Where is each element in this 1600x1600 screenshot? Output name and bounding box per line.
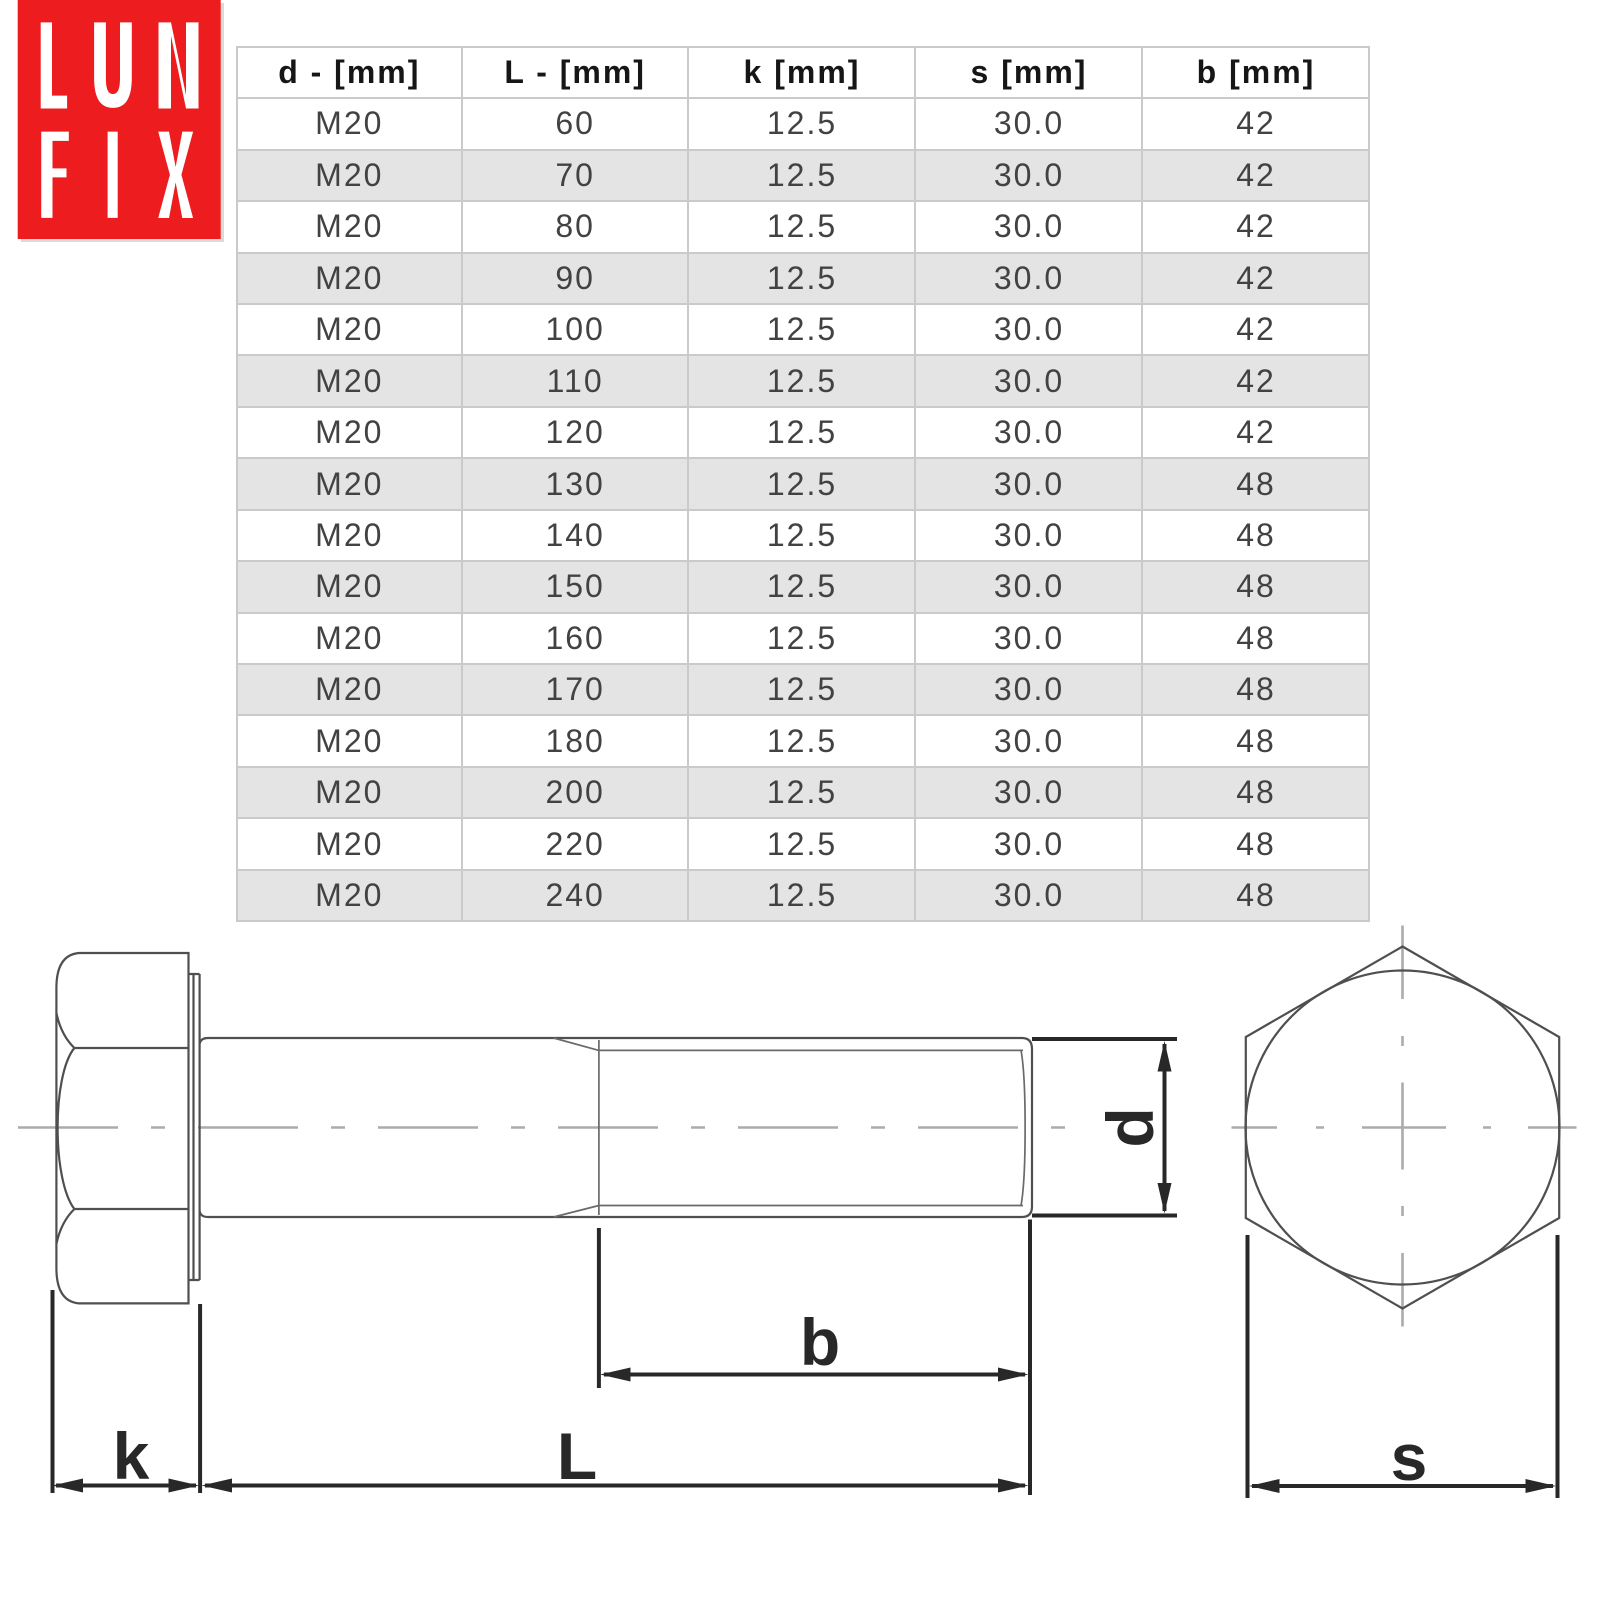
- svg-text:b: b: [800, 1305, 840, 1379]
- svg-text:s: s: [1391, 1420, 1428, 1494]
- svg-text:d: d: [1093, 1107, 1167, 1147]
- svg-text:k: k: [113, 1419, 150, 1493]
- svg-text:L: L: [557, 1419, 597, 1493]
